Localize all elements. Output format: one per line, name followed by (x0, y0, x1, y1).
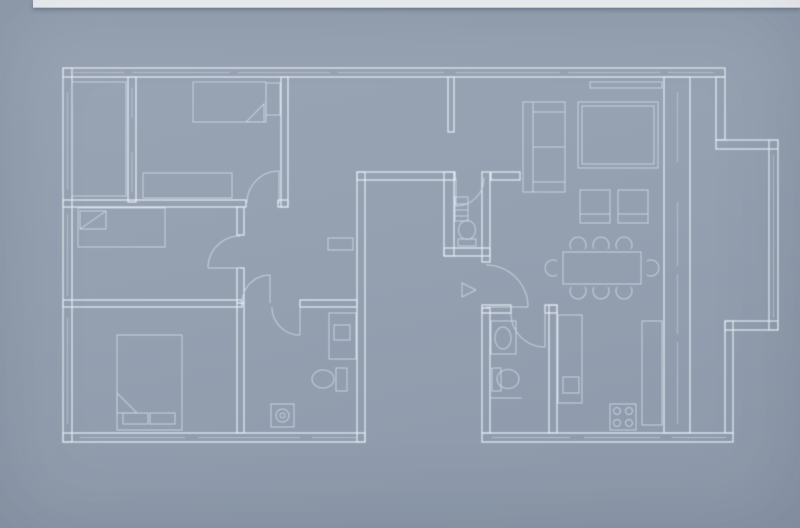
bay-wall-upper-right (716, 77, 725, 140)
hall-jog-wall (444, 248, 490, 256)
bedroom-c-east-wall (237, 303, 244, 433)
bedroom-a-east-wall (281, 77, 288, 207)
wc-toilet-tank (458, 239, 476, 246)
bathroom2-north-wall-east (545, 305, 557, 313)
kitchen-sink (563, 377, 579, 393)
kitchen-counter-east (642, 321, 662, 425)
bed-2 (78, 208, 165, 247)
balcony-floor-line (72, 82, 126, 196)
dining-chair-left (545, 260, 557, 276)
door-bedroom-b-arc (208, 236, 240, 268)
hall-shelf (328, 238, 353, 250)
bedroom-divider-west (63, 300, 242, 307)
door-bathroom-1-arc (272, 307, 300, 335)
outer-wall-right-lower (725, 321, 733, 433)
kitchen-counter-west (558, 315, 582, 403)
vanity-1-basin (334, 325, 350, 340)
bed-1-nightstand (266, 83, 280, 115)
east-wall (664, 77, 690, 433)
wc-toilet-bowl (459, 221, 476, 240)
bed-1-fold (246, 104, 264, 122)
toilet-2-bowl (497, 370, 519, 389)
rug (578, 102, 658, 168)
bed-3-pillow-left (123, 413, 148, 424)
rug-inner (582, 106, 654, 164)
door-wc-arc (456, 178, 484, 206)
entrance-arrow (462, 283, 476, 297)
vanity-1 (329, 313, 356, 359)
bedroom-a-south-wall (63, 200, 246, 207)
bedroom-divider-east (300, 300, 357, 307)
toilet-2-tank (492, 368, 501, 391)
washing-machine-drum (276, 409, 289, 422)
stove (610, 404, 636, 430)
dining-chair-top-1 (570, 237, 586, 249)
washing-machine (271, 404, 294, 427)
toilet-1-tank (336, 368, 347, 391)
kitchen-bathroom-divider (549, 305, 557, 433)
dining-chair-top-2 (593, 237, 609, 249)
stove-burner-4 (626, 420, 633, 427)
sink-2-basin (495, 327, 511, 349)
dining-chair-top-3 (616, 237, 632, 249)
washing-machine-drum-inner (280, 413, 285, 418)
stove-burner-2 (626, 408, 633, 415)
floor-plan-svg (0, 0, 800, 528)
door-corridor-arc (242, 275, 270, 303)
screenshot-background (0, 0, 800, 528)
west-wall-below-entrance (482, 308, 490, 433)
dining-chair-bottom-1 (570, 287, 586, 299)
hall-living-wall (491, 172, 520, 180)
partial-wall-hall-top (448, 77, 454, 132)
bed-3-pillow-right (150, 413, 175, 424)
bed-3-fold (117, 393, 137, 413)
dining-chair-bottom-3 (616, 287, 632, 299)
corridor-wall-upper (237, 207, 244, 235)
dining-chair-bottom-2 (593, 287, 609, 299)
stove-burner-3 (614, 420, 621, 427)
armchair-2 (618, 190, 648, 223)
toilet-1-bowl (312, 370, 334, 388)
wc-radiator (455, 197, 468, 221)
dining-table (563, 252, 641, 284)
bed-1 (193, 82, 266, 122)
bed-2-pillow-fold (80, 211, 106, 229)
dresser-1 (143, 173, 232, 198)
stove-burner-1 (614, 408, 621, 415)
patio-wall-left (357, 172, 365, 442)
bathroom2-north-wall-west (482, 305, 511, 313)
door-entrance-arc (486, 265, 528, 307)
patio-wall-right (444, 172, 454, 256)
armchair-1 (580, 190, 610, 223)
dining-chair-right (647, 260, 659, 276)
window-sill-living (590, 82, 662, 88)
door-bedroom-a-arc (247, 171, 279, 203)
patio-wall-top (357, 172, 455, 180)
